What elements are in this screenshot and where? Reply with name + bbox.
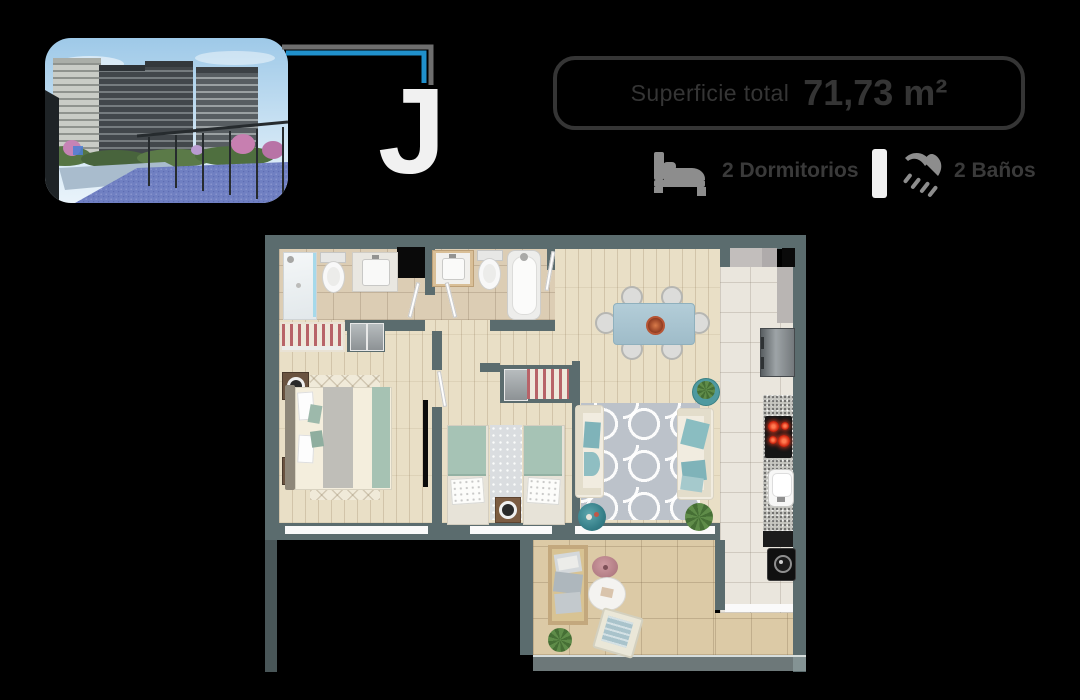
- window-second-bedroom: [470, 526, 552, 534]
- single-bed-spread: [524, 426, 562, 476]
- dresser-panel-2: [367, 323, 384, 351]
- terrace-plant: [548, 628, 572, 652]
- oven: [763, 531, 793, 547]
- toilet-2-seat: [483, 264, 496, 283]
- cooktop: [765, 416, 792, 458]
- sofa-back: [576, 406, 583, 495]
- vanity-1: [352, 252, 398, 292]
- shower: [283, 252, 317, 320]
- wall-top: [265, 235, 806, 249]
- single-bed-pillow: [526, 477, 561, 505]
- fridge-handle: [761, 357, 764, 369]
- wall-terrace-left: [520, 538, 533, 655]
- sofa-arm: [576, 488, 601, 495]
- terrace-table: [588, 577, 626, 611]
- cooktop-burner: [768, 421, 779, 432]
- wall-right: [793, 235, 806, 672]
- wall-loggia: [715, 540, 725, 610]
- bed-icon: [650, 146, 712, 198]
- lounge-cushion: [601, 616, 633, 648]
- nightstand-decor: [499, 501, 517, 519]
- bathtub: [507, 250, 541, 320]
- toilet-1-bowl: [322, 261, 345, 293]
- wall-bedrooms-divider-a: [432, 331, 442, 370]
- coffee-table: [578, 503, 606, 531]
- vanity-2-tap: [449, 254, 456, 258]
- pouf-button: [603, 565, 608, 570]
- bathtub-inner: [512, 256, 537, 315]
- bathrooms-label: 2 Baños: [954, 159, 1036, 183]
- shower-icon: [900, 148, 952, 200]
- unit-model-letter: J: [378, 70, 446, 192]
- side-table: [692, 378, 720, 406]
- double-bed: [285, 385, 390, 490]
- washer-drum: [774, 555, 792, 573]
- fridge-handle: [761, 337, 764, 349]
- washer: [767, 548, 796, 581]
- sink-faucet: [777, 497, 785, 502]
- side-table-plant: [697, 381, 715, 399]
- shower-head: [287, 256, 294, 263]
- vanity-1-basin: [362, 259, 390, 286]
- shower-glass: [313, 253, 316, 317]
- cooktop-burner: [781, 422, 789, 430]
- bed-headboard: [285, 385, 295, 490]
- window-main-bedroom: [285, 526, 428, 534]
- surface-badge-value: 71,73 m²: [803, 72, 947, 114]
- bathtub-tap: [520, 253, 528, 261]
- duct-shaft-2: [782, 248, 795, 267]
- dresser-panel-1: [350, 323, 367, 351]
- second-bedroom-closet: [500, 365, 573, 403]
- shower-drain: [296, 283, 301, 288]
- window-loggia: [725, 604, 793, 612]
- closet-clothes: [527, 369, 569, 399]
- floor-plan: [265, 235, 806, 672]
- stats-divider: [872, 149, 887, 198]
- bed-gray-throw: [323, 387, 353, 488]
- sofa-cushion-teal: [680, 476, 704, 493]
- single-bed-pillow: [450, 477, 485, 505]
- sofa-cushion-teal: [583, 421, 601, 448]
- cooktop-burner: [778, 435, 790, 447]
- sofa-cushion-teal: [584, 452, 600, 476]
- sofa-arm: [678, 409, 711, 416]
- page: J Superficie total 71,73 m² 2 Dormitorio…: [0, 0, 1080, 700]
- terrace-railing: [533, 655, 806, 671]
- vanity-1-tap: [372, 255, 379, 259]
- surface-badge-label: Superficie total: [631, 80, 790, 107]
- project-photo-graphic: [45, 38, 288, 203]
- terrace-floor-side: [715, 613, 793, 655]
- wall-bedrooms-divider-b: [432, 407, 442, 523]
- dining-centerpiece: [646, 316, 665, 335]
- coffee-table-decor: [586, 514, 592, 520]
- wardrobe-clothes: [282, 324, 343, 346]
- wall-tv: [423, 400, 428, 487]
- single-bed-spread: [448, 426, 486, 476]
- wall-left-stub: [265, 540, 277, 672]
- nightstand-between-beds: [495, 497, 521, 523]
- duct-shaft-1: [397, 247, 425, 278]
- terrace-cushion: [554, 592, 582, 614]
- cooktop-burner: [769, 436, 777, 444]
- sofa-right: [677, 408, 714, 500]
- coffee-table-decor: [594, 512, 599, 517]
- kitchen-sink: [768, 469, 794, 507]
- closet-panel: [504, 369, 528, 401]
- sofa-arm: [576, 406, 601, 413]
- bed-accent-pillow: [310, 430, 324, 448]
- entry-mat-dark: [762, 248, 777, 267]
- dining-table: [613, 303, 695, 345]
- kitchen-tall-cabinet: [777, 267, 793, 323]
- main-bedroom-wardrobe: [280, 322, 345, 352]
- terrace-pouf: [592, 556, 618, 578]
- wall-under-bath-b: [490, 320, 555, 331]
- vanity-2-basin: [442, 258, 465, 280]
- wall-left: [265, 235, 279, 540]
- single-bed-right: [523, 425, 565, 525]
- bed-sage-runner: [372, 387, 390, 488]
- wardrobe-rail: [282, 346, 343, 350]
- dresser: [347, 320, 385, 352]
- terrace-sofa: [548, 545, 588, 625]
- wall-entry-left: [720, 248, 730, 267]
- sofa-left: [575, 405, 604, 498]
- terrace-table-decor: [600, 587, 614, 598]
- fridge: [760, 328, 795, 377]
- toilet-2-bowl: [478, 258, 501, 290]
- wall-closet-tab: [480, 363, 500, 372]
- washer-dot: [779, 560, 783, 564]
- toilet-1-seat: [327, 267, 340, 286]
- surface-badge: Superficie total 71,73 m²: [553, 56, 1025, 130]
- project-photo: [45, 38, 288, 203]
- living-plant: [685, 503, 713, 531]
- single-bed-left: [447, 425, 489, 525]
- sink-basin: [772, 473, 792, 497]
- bedrooms-label: 2 Dormitorios: [722, 159, 859, 183]
- vanity-2: [432, 250, 474, 287]
